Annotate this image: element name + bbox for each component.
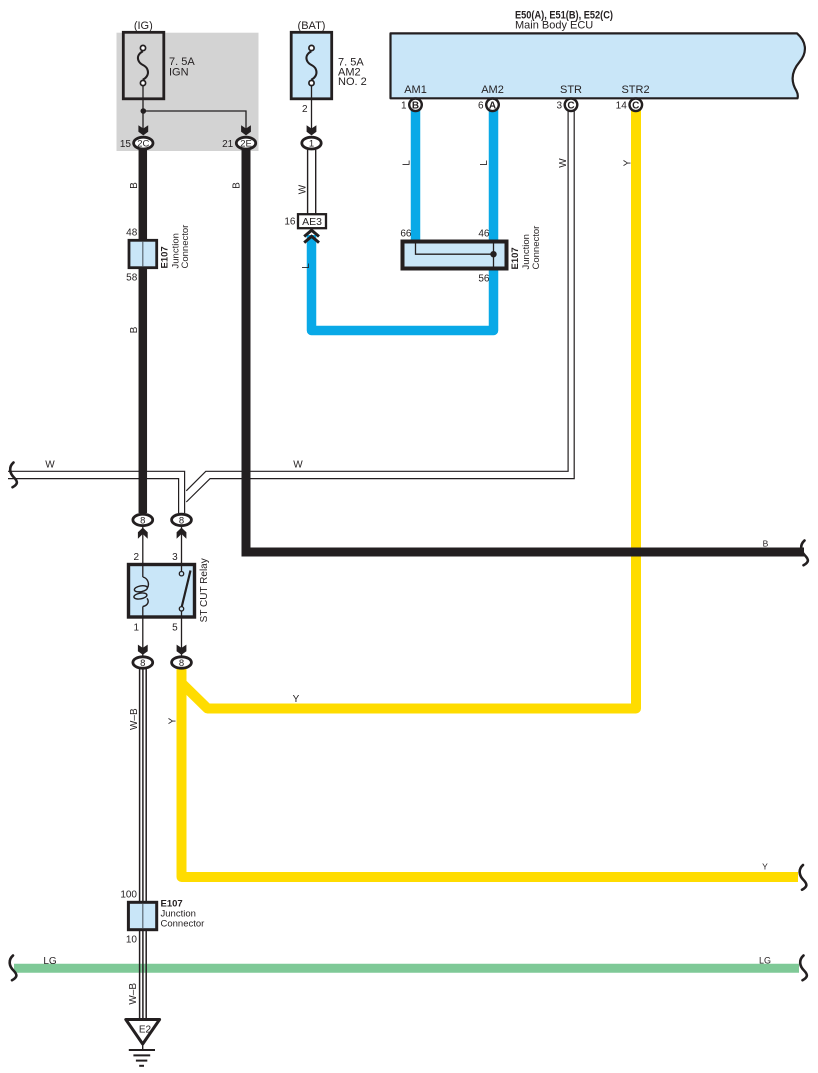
svg-text:56: 56: [478, 274, 490, 285]
svg-text:STR: STR: [560, 84, 582, 96]
svg-text:L: L: [402, 160, 413, 166]
svg-text:2: 2: [302, 104, 308, 115]
svg-text:16: 16: [284, 217, 296, 228]
svg-text:2: 2: [133, 552, 139, 563]
svg-text:8: 8: [179, 515, 184, 526]
svg-text:3: 3: [172, 552, 178, 563]
svg-text:8: 8: [179, 658, 184, 669]
svg-text:1: 1: [133, 623, 139, 634]
svg-text:8: 8: [140, 515, 145, 526]
svg-text:Connector: Connector: [531, 226, 542, 270]
svg-text:B: B: [232, 182, 243, 189]
svg-text:AE3: AE3: [302, 216, 322, 228]
svg-text:C: C: [567, 101, 574, 112]
svg-text:(BAT): (BAT): [298, 20, 326, 32]
svg-text:STR2: STR2: [621, 84, 649, 96]
svg-text:W: W: [45, 460, 55, 471]
svg-text:1: 1: [401, 101, 407, 112]
svg-text:LG: LG: [43, 956, 57, 967]
svg-text:6: 6: [478, 101, 484, 112]
svg-text:15: 15: [120, 139, 132, 150]
svg-text:Y: Y: [762, 862, 768, 872]
svg-text:Y: Y: [623, 159, 634, 166]
svg-text:AM1: AM1: [404, 84, 427, 96]
svg-text:E107: E107: [160, 246, 171, 268]
svg-text:Y: Y: [293, 694, 300, 705]
svg-text:L: L: [301, 263, 312, 269]
svg-text:B: B: [129, 326, 140, 333]
svg-text:C: C: [632, 101, 639, 112]
svg-text:21: 21: [222, 139, 234, 150]
svg-text:W: W: [558, 158, 569, 168]
svg-text:66: 66: [400, 229, 412, 240]
svg-text:IGN: IGN: [169, 67, 189, 79]
svg-text:Connector: Connector: [180, 225, 191, 269]
svg-text:E2: E2: [139, 1025, 152, 1036]
svg-text:W–B: W–B: [128, 983, 139, 1005]
svg-text:W: W: [293, 460, 303, 471]
svg-text:48: 48: [126, 228, 138, 239]
svg-text:(IG): (IG): [134, 20, 153, 32]
svg-text:A: A: [489, 101, 496, 112]
svg-text:AM2: AM2: [481, 84, 504, 96]
svg-text:3: 3: [556, 101, 562, 112]
svg-text:1: 1: [309, 139, 314, 150]
svg-text:58: 58: [126, 273, 138, 284]
svg-text:2C: 2C: [137, 139, 149, 150]
svg-text:8: 8: [140, 658, 145, 669]
svg-text:E107: E107: [510, 247, 521, 269]
svg-text:ST CUT Relay: ST CUT Relay: [199, 558, 210, 622]
svg-text:100: 100: [120, 890, 137, 901]
svg-text:Y: Y: [168, 717, 179, 724]
svg-text:Main Body ECU: Main Body ECU: [515, 20, 593, 32]
svg-text:L: L: [479, 160, 490, 166]
svg-text:2E: 2E: [240, 139, 252, 150]
svg-text:NO. 2: NO. 2: [338, 76, 367, 88]
svg-text:LG: LG: [759, 955, 771, 965]
svg-text:46: 46: [478, 229, 490, 240]
svg-text:W: W: [298, 184, 309, 194]
svg-text:B: B: [129, 182, 140, 189]
svg-text:10: 10: [126, 935, 138, 946]
svg-text:5: 5: [172, 623, 178, 634]
svg-text:Junction: Junction: [161, 908, 196, 919]
svg-text:B: B: [763, 539, 769, 549]
svg-text:B: B: [412, 101, 419, 112]
svg-text:Connector: Connector: [161, 919, 205, 930]
svg-text:14: 14: [616, 101, 628, 112]
svg-text:W–B: W–B: [129, 708, 140, 730]
